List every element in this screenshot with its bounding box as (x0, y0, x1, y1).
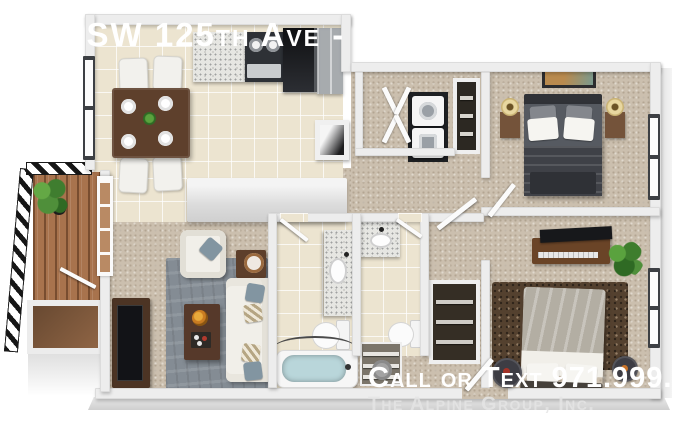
address-overlay: 0 SW 125th Ave - 107B (55, 16, 443, 54)
table-centerpiece-plant (143, 112, 156, 125)
flower-vase (192, 310, 208, 326)
master-lamp-left (501, 98, 519, 116)
coat-closet-bifold-doors (386, 84, 412, 144)
balcony-storage-closet (27, 300, 104, 354)
bathroom-b-sink (370, 233, 392, 248)
dinner-plate (121, 134, 136, 149)
dinner-plate (158, 131, 173, 146)
dining-chair (152, 56, 182, 92)
master-lamp-right (606, 98, 624, 116)
floorplan-image: 0 SW 125th Ave - 107B Call or Text 971.9… (0, 0, 700, 425)
bathtub-basin (282, 355, 346, 382)
round-mirror (244, 253, 264, 273)
wall-bath-left (268, 213, 277, 388)
wall-master-left (481, 72, 490, 178)
dining-window (83, 56, 95, 160)
dinner-plate (158, 96, 173, 111)
wall-laundry-bottom (355, 148, 455, 156)
bedroom2-plant (606, 240, 644, 278)
dining-chair (118, 157, 149, 193)
master-window (648, 114, 660, 200)
hall-closet (429, 280, 480, 364)
bathroom-b-vanity (360, 221, 400, 257)
wall-laundry-left (355, 72, 363, 152)
dinner-plate (121, 99, 136, 114)
bathroom-b-faucet (379, 227, 384, 232)
wall-master-bottom (481, 207, 660, 216)
company-overlay: The Alpine Group, Inc. (368, 393, 595, 416)
plinth-balcony (28, 352, 104, 396)
plinth-right (661, 68, 672, 398)
bathtub (276, 350, 358, 388)
side-table (236, 250, 266, 278)
master-bed-foot (530, 172, 596, 194)
bedroom2-window (648, 268, 660, 348)
wire-shelf-closet (453, 78, 480, 154)
phone-cta-overlay: Call or Text 971.999.3214 (368, 362, 700, 395)
bathroom-a-faucet (344, 252, 349, 257)
sliding-door-panels (100, 180, 110, 272)
bathroom-a-vanity (324, 230, 354, 316)
bathtub-faucet (345, 364, 351, 370)
stove-front-panel (247, 64, 281, 78)
built-in-desk (315, 120, 349, 160)
armchair (180, 230, 226, 278)
bathroom-a-sink (329, 258, 347, 284)
washer (412, 96, 444, 126)
dining-chair (152, 155, 183, 191)
master-bed (524, 104, 602, 196)
sofa (226, 278, 272, 382)
television (117, 305, 143, 381)
balcony-railing-top (26, 162, 92, 175)
serving-tray (191, 332, 211, 348)
wall-bath-divider (352, 213, 361, 356)
balcony-plant (30, 176, 70, 218)
coffee-table (184, 304, 220, 360)
wall-top-right (351, 62, 660, 72)
